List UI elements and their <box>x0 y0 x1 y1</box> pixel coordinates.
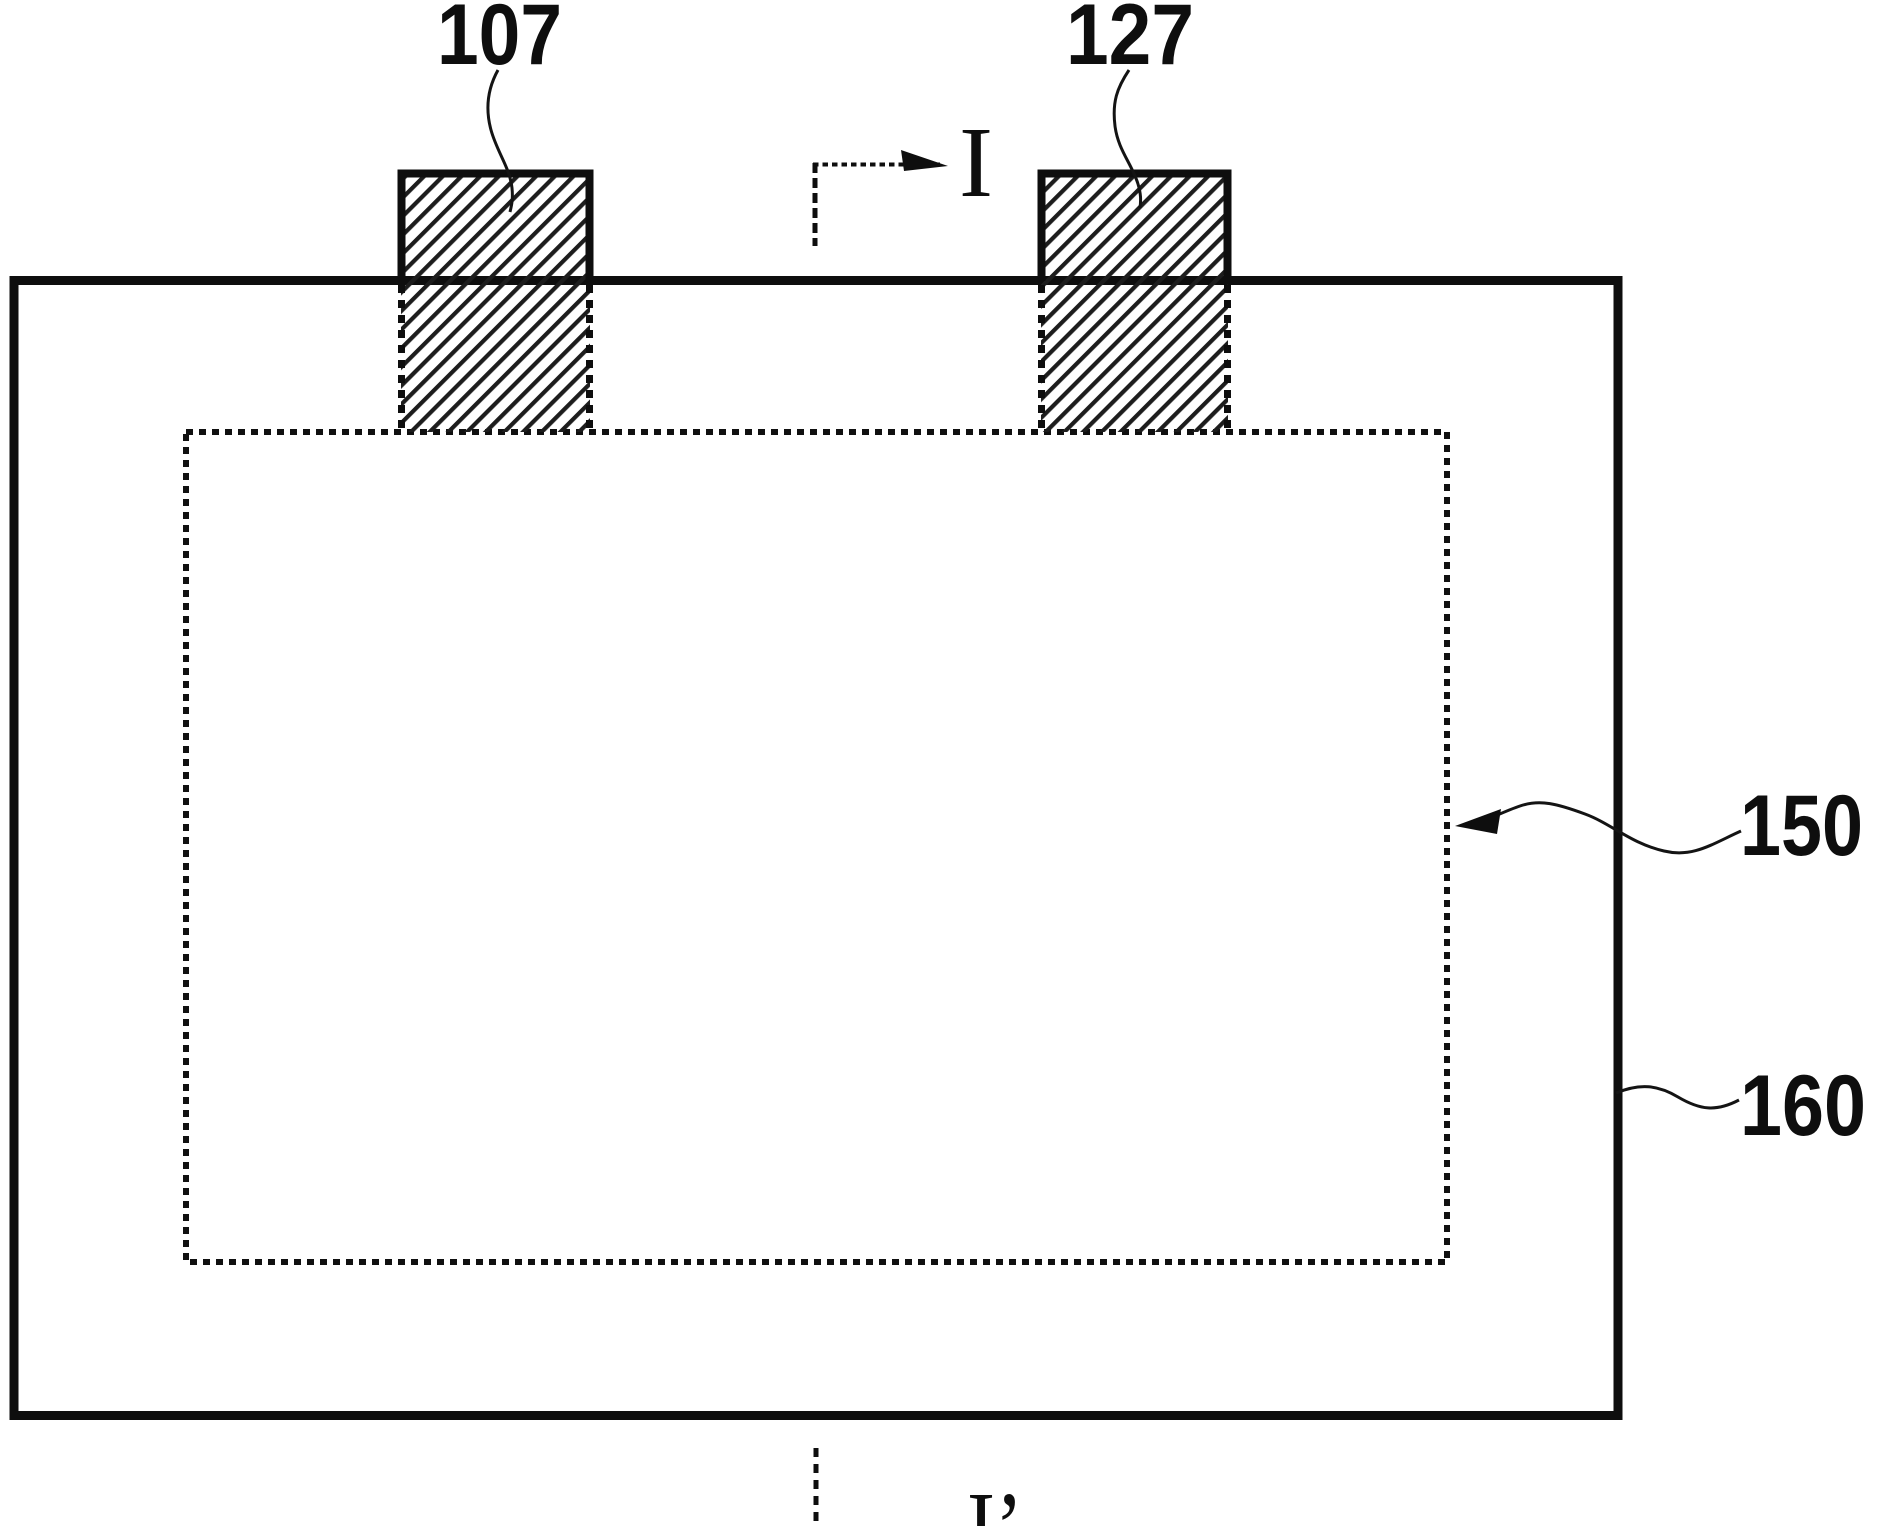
svg-text:107: 107 <box>437 0 562 83</box>
svg-text:150: 150 <box>1740 778 1863 874</box>
svg-text:127: 127 <box>1066 0 1194 83</box>
svg-text:I: I <box>959 106 993 218</box>
svg-text:160: 160 <box>1740 1058 1866 1154</box>
svg-text:I’: I’ <box>967 1471 1023 1526</box>
